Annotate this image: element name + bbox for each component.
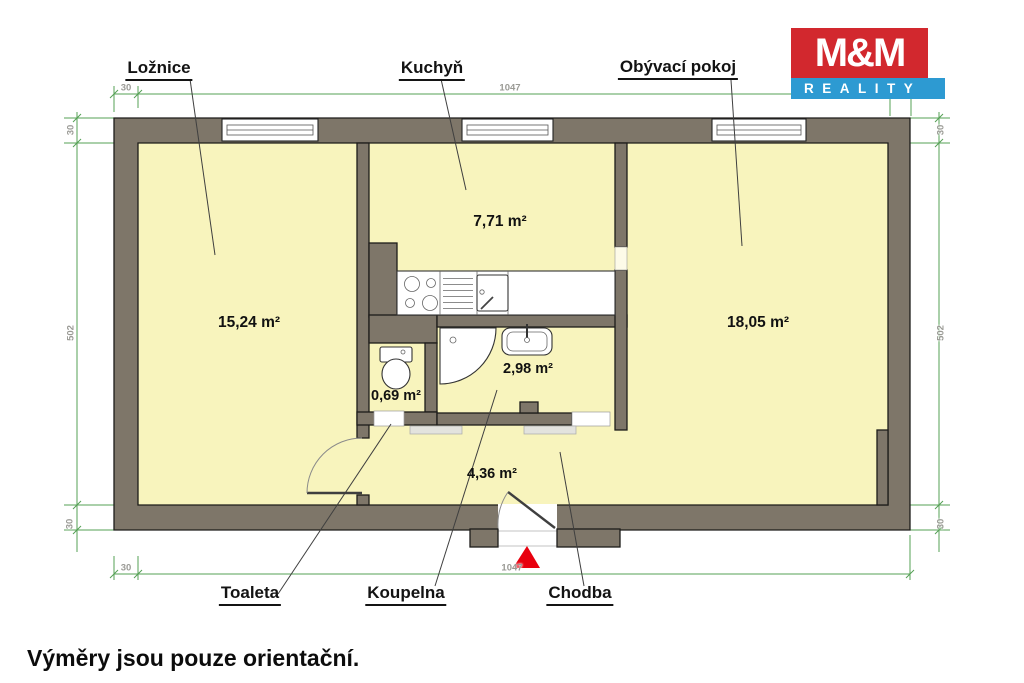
dim-left-total: 502 <box>66 325 77 341</box>
mm-reality-logo: M&M REALITY <box>791 28 945 99</box>
room-label-koupelna: Koupelna <box>365 584 446 606</box>
room-label-chodba: Chodba <box>546 584 613 606</box>
room-label-obyvaci-pokoj: Obývací pokoj <box>618 58 738 80</box>
toilet-door-opening <box>374 411 404 426</box>
area-label-koupelna: 2,98 m² <box>503 361 553 377</box>
dim-top-total: 1047 <box>499 83 520 94</box>
room-label-toaleta: Toaleta <box>219 584 281 606</box>
window-obyvaci-pokoj <box>712 119 806 141</box>
toilet <box>380 347 412 389</box>
kitchen-counter <box>397 271 615 315</box>
room-label-loznice: Ložnice <box>125 59 192 81</box>
bathroom-door-mat <box>524 426 576 434</box>
wall-chunk-left-of-entrance <box>470 529 498 547</box>
area-label-chodba: 4,36 m² <box>467 466 517 482</box>
washbasin <box>502 324 552 355</box>
kitchen-sink <box>477 275 508 311</box>
room-label-kuchyn: Kuchyň <box>399 59 465 81</box>
wall-chunk-right-of-entrance <box>557 529 620 547</box>
dim-left-wall: 30 <box>66 125 77 136</box>
dim-bottom-wall: 30 <box>121 563 132 574</box>
kitchen-living-door-opening <box>615 247 627 270</box>
dim-top-wall: 30 <box>121 83 132 94</box>
toilet-door-mat <box>410 426 462 434</box>
area-label-obyvaci-pokoj: 18,05 m² <box>727 314 789 332</box>
window-loznice <box>222 119 318 141</box>
entrance-sill <box>498 531 557 546</box>
window-kuchyn <box>462 119 553 141</box>
dim-right-wall: 30 <box>936 125 947 136</box>
area-label-kuchyn: 7,71 m² <box>473 213 526 231</box>
wall-step-right <box>877 430 888 505</box>
logo-bottom-text: REALITY <box>791 78 945 99</box>
bathroom-door-opening <box>572 412 610 426</box>
area-label-toaleta: 0,69 m² <box>371 388 421 404</box>
area-label-loznice: 15,24 m² <box>218 314 280 332</box>
floor-plan <box>0 0 1024 683</box>
dim-right-total: 502 <box>936 325 947 341</box>
logo-top-text: M&M <box>791 28 928 78</box>
dim-right-bottom-wall: 30 <box>936 519 947 530</box>
dim-left-bottom-wall: 30 <box>65 519 76 530</box>
footer-disclaimer: Výměry jsou pouze orientační. <box>27 645 359 672</box>
dim-bottom-total: 1047 <box>501 563 522 574</box>
